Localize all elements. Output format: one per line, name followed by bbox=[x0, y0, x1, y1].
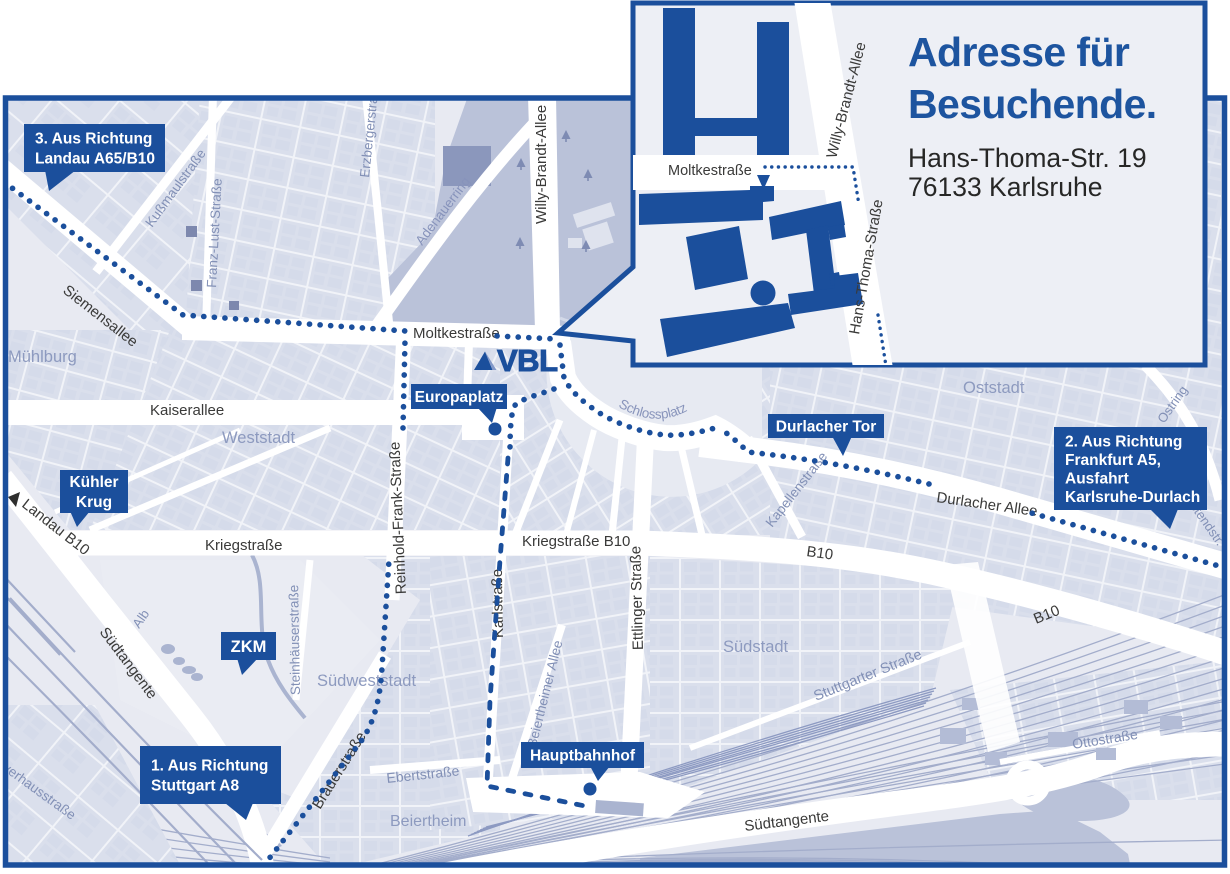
svg-text:Krug: Krug bbox=[76, 494, 112, 511]
svg-text:Oststadt: Oststadt bbox=[963, 379, 1025, 397]
svg-text:Durlacher Tor: Durlacher Tor bbox=[776, 419, 877, 436]
svg-text:Kühler: Kühler bbox=[69, 474, 118, 491]
svg-text:Kaiserallee: Kaiserallee bbox=[150, 402, 224, 419]
svg-text:Mühlburg: Mühlburg bbox=[8, 348, 77, 366]
svg-text:Moltkestraße: Moltkestraße bbox=[413, 325, 500, 342]
svg-text:Hauptbahnhof: Hauptbahnhof bbox=[530, 748, 636, 765]
svg-text:1. Aus Richtung: 1. Aus Richtung bbox=[151, 758, 268, 775]
svg-text:VBL: VBL bbox=[497, 343, 558, 378]
svg-text:Kriegstraße: Kriegstraße bbox=[205, 537, 283, 554]
svg-text:Ettlinger Straße: Ettlinger Straße bbox=[627, 546, 647, 651]
svg-text:Ausfahrt: Ausfahrt bbox=[1065, 470, 1129, 487]
svg-text:Moltkestraße: Moltkestraße bbox=[668, 163, 752, 179]
svg-text:2. Aus Richtung: 2. Aus Richtung bbox=[1065, 433, 1182, 450]
svg-text:Beiertheim: Beiertheim bbox=[390, 813, 466, 830]
svg-text:Landau A65/B10: Landau A65/B10 bbox=[35, 151, 155, 168]
svg-text:Hans-Thoma-Str. 19: Hans-Thoma-Str. 19 bbox=[908, 143, 1147, 173]
svg-text:Europaplatz: Europaplatz bbox=[415, 389, 504, 406]
svg-text:Stuttgart A8: Stuttgart A8 bbox=[151, 778, 239, 795]
svg-text:Adresse für: Adresse für bbox=[908, 29, 1130, 75]
svg-text:Südstadt: Südstadt bbox=[723, 638, 789, 656]
svg-text:Besuchende.: Besuchende. bbox=[908, 81, 1157, 127]
svg-text:Frankfurt A5,: Frankfurt A5, bbox=[1065, 452, 1161, 469]
svg-text:Kriegstraße B10: Kriegstraße B10 bbox=[522, 533, 630, 550]
svg-text:Südweststadt: Südweststadt bbox=[317, 672, 416, 690]
svg-text:76133 Karlsruhe: 76133 Karlsruhe bbox=[908, 172, 1102, 202]
svg-text:Steinhäuserstraße: Steinhäuserstraße bbox=[286, 585, 303, 696]
svg-text:3. Aus Richtung: 3. Aus Richtung bbox=[35, 131, 152, 148]
svg-text:ZKM: ZKM bbox=[231, 638, 267, 656]
svg-text:Willy-Brandt-Allee: Willy-Brandt-Allee bbox=[533, 105, 550, 224]
svg-text:Karlsruhe-Durlach: Karlsruhe-Durlach bbox=[1065, 489, 1200, 506]
svg-text:Weststadt: Weststadt bbox=[222, 429, 295, 447]
